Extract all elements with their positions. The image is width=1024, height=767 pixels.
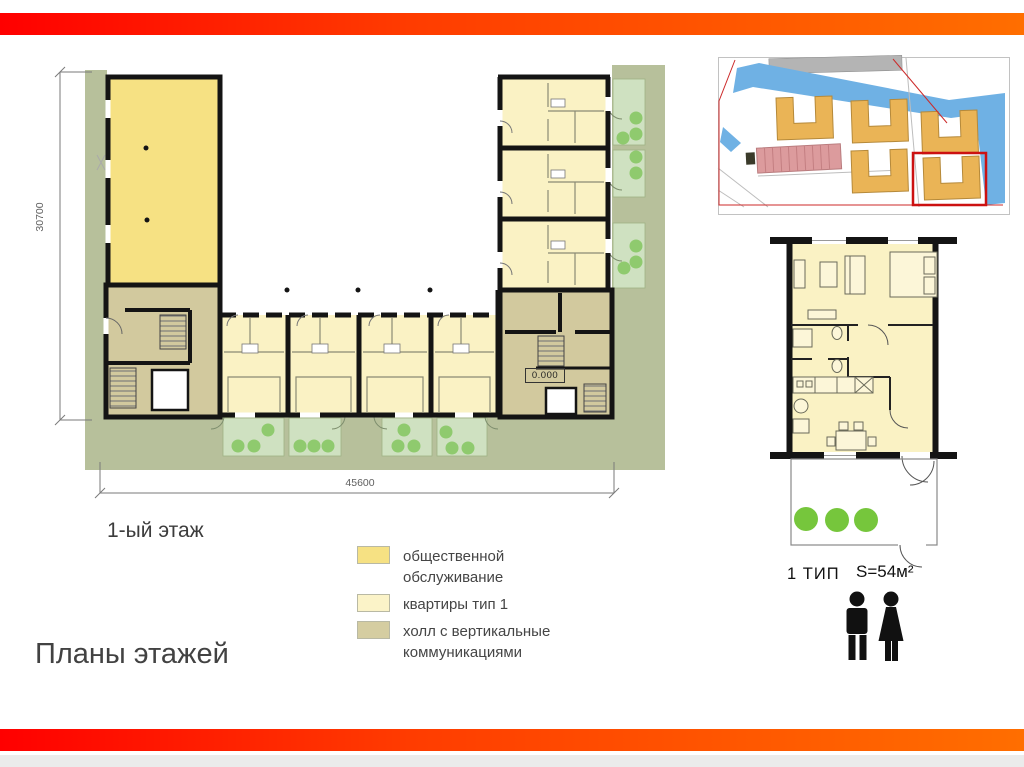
height-dimension-label: 30700: [34, 177, 46, 257]
legend-item-hall: холл с вертикальные коммуникациями: [357, 621, 593, 663]
bottom-wing-apartments: [220, 77, 500, 417]
legend-swatch-apartments: [357, 594, 390, 612]
width-dimension-label: 45600: [310, 477, 410, 489]
right-terraces: [613, 79, 645, 288]
unit-area-label: S=54м²: [856, 562, 914, 582]
man-icon: [847, 592, 868, 661]
legend-item-apartments: квартиры тип 1: [357, 594, 593, 615]
legend-label-public-service: общественной обслуживание: [403, 546, 593, 588]
floor-label: 1-ый этаж: [107, 519, 204, 543]
elevation-mark: 0.000: [525, 368, 565, 383]
unit-terrace: [791, 459, 937, 567]
page-title: Планы этажей: [35, 638, 229, 671]
legend-item-public-service: общественной обслуживание: [357, 546, 593, 588]
site-plan-minimap: [718, 55, 1005, 207]
public-service-room: [97, 77, 220, 285]
legend-label-apartments: квартиры тип 1: [403, 594, 593, 615]
unit-type-label: 1 ТИП: [787, 565, 840, 584]
left-stair-hall: [106, 285, 220, 417]
parking-building: [745, 144, 841, 174]
legend-swatch-public-service: [357, 546, 390, 564]
unit-plan-type1: [770, 237, 957, 567]
right-wing-apartments: [498, 77, 610, 290]
legend-swatch-hall: [357, 621, 390, 639]
main-floor-plan: [55, 65, 665, 498]
legend-label-hall: холл с вертикальные коммуникациями: [403, 621, 593, 663]
woman-icon: [879, 592, 904, 662]
legend: общественной обслуживание квартиры тип 1…: [357, 546, 593, 669]
right-stair-hall: [500, 290, 612, 417]
